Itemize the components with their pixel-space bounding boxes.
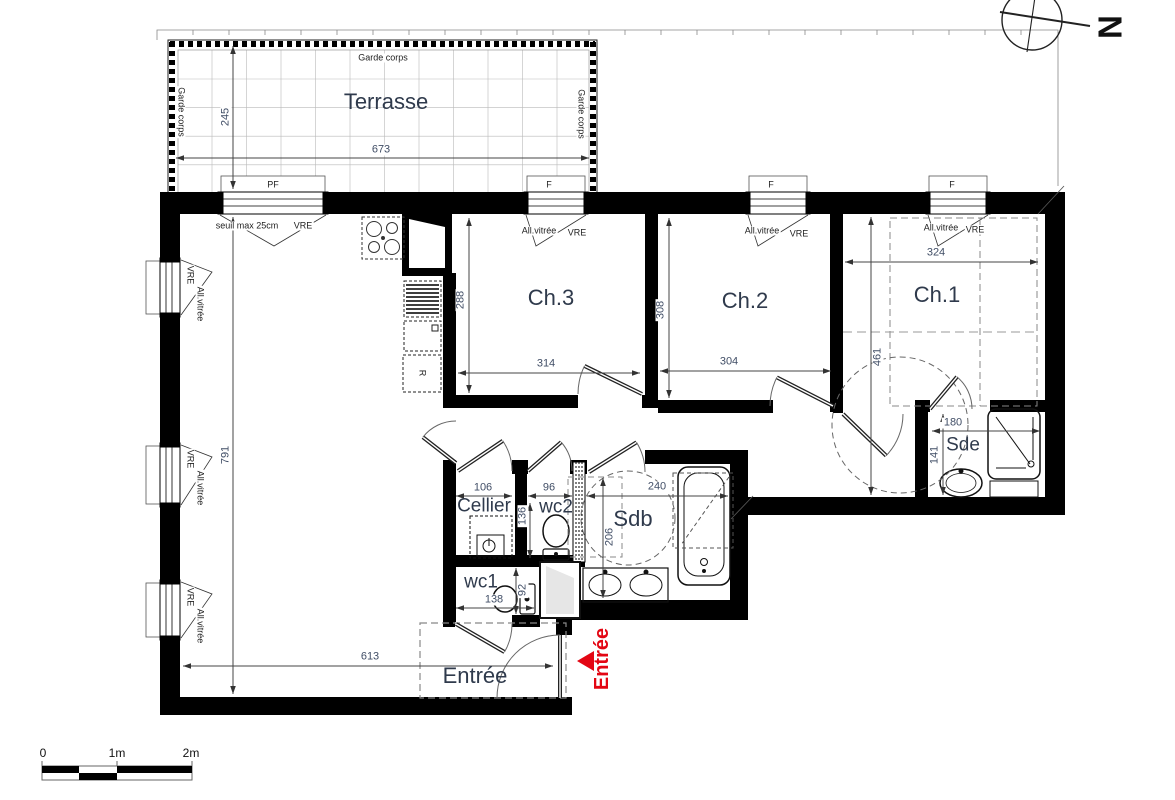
sde-shelf	[990, 481, 1038, 497]
window-f-ch3	[524, 176, 588, 246]
floor-plan: N Entrée TerrasseCh.3Ch.2Ch.1SdeSdbwc2Ce…	[0, 0, 1175, 800]
appliance-reserved	[404, 321, 441, 351]
window-left-1	[146, 258, 212, 317]
duct-shaft-kitchen	[402, 212, 452, 276]
appliance-hatched	[404, 281, 441, 317]
scale-bar	[42, 761, 192, 780]
toilet-wc2-icon	[543, 515, 569, 560]
entrance-arrow-icon	[577, 651, 594, 671]
window-left-3	[146, 580, 212, 640]
terrace	[168, 40, 597, 195]
water-heater-icon	[470, 516, 512, 558]
window-pf	[218, 176, 328, 246]
level-ticks	[731, 186, 1064, 519]
walls	[160, 192, 1065, 715]
window-f-ch2	[746, 176, 810, 246]
turning-circle-sdb	[581, 471, 675, 565]
ch1-furniture-zone	[890, 218, 1037, 406]
property-line-ticks	[193, 30, 1021, 35]
entry-zone	[420, 623, 566, 698]
windows-left	[146, 258, 212, 640]
bathtub-icon	[673, 467, 733, 585]
doors	[423, 366, 972, 698]
duct-shaft-entry	[540, 562, 580, 618]
floor-plan-drawing	[0, 0, 1175, 800]
shower-icon	[988, 409, 1040, 479]
washbasin-sde-icon	[940, 469, 982, 497]
refrigerator-slot	[403, 355, 441, 392]
double-washbasin-icon	[583, 568, 668, 602]
kitchen	[362, 212, 452, 392]
window-left-2	[146, 443, 212, 507]
north-compass-icon	[1000, 0, 1090, 52]
cooktop-icon	[362, 217, 404, 259]
